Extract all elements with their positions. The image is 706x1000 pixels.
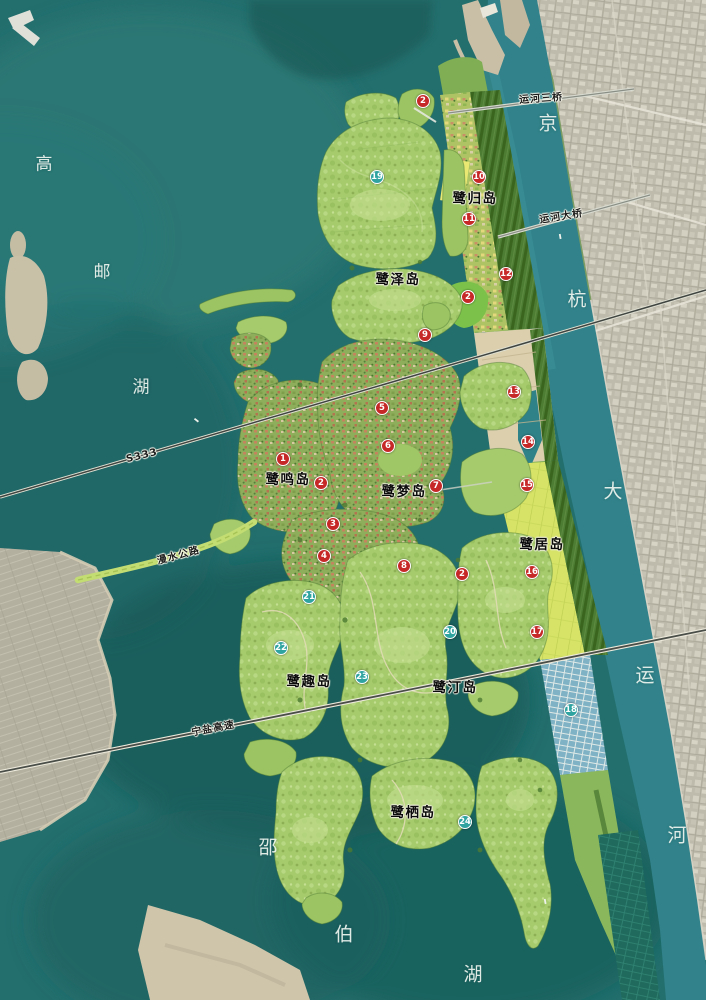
- map-marker-11[interactable]: 11: [462, 212, 476, 226]
- map-marker-4[interactable]: 4: [317, 549, 331, 563]
- water-label-char: 邵: [258, 833, 277, 860]
- map-marker-5[interactable]: 5: [375, 401, 389, 415]
- map-marker-2[interactable]: 2: [416, 94, 430, 108]
- road-label-宁盐高速: 宁盐高速: [190, 715, 236, 738]
- map-marker-9[interactable]: 9: [418, 328, 432, 342]
- map-marker-14[interactable]: 14: [521, 435, 535, 449]
- map-marker-2[interactable]: 2: [461, 290, 475, 304]
- map-marker-16[interactable]: 16: [525, 565, 539, 579]
- water-label-char: 京: [538, 109, 557, 136]
- island-label-鹭栖岛: 鹭栖岛: [391, 801, 436, 821]
- road-label-运河大桥: 运河大桥: [538, 204, 584, 226]
- water-label-char: 运: [635, 661, 654, 688]
- map-marker-10[interactable]: 10: [472, 170, 486, 184]
- map-marker-15[interactable]: 15: [520, 478, 534, 492]
- road-label-漫水公路: 漫水公路: [155, 541, 201, 567]
- island-label-鹭泽岛: 鹭泽岛: [376, 268, 421, 288]
- water-label-char: 湖: [463, 960, 482, 987]
- map-marker-1[interactable]: 1: [276, 452, 290, 466]
- island-label-鹭梦岛: 鹭梦岛: [382, 480, 427, 500]
- map-marker-2[interactable]: 2: [455, 567, 469, 581]
- water-label-char: 河: [667, 821, 686, 848]
- map-marker-24[interactable]: 24: [458, 815, 472, 829]
- satellite-master-plan-map: 高邮湖邵伯湖京杭大运河鹭归岛鹭泽岛鹭鸣岛鹭梦岛鹭居岛鹭趣岛鹭汀岛鹭栖岛运河三桥运…: [0, 0, 706, 1000]
- map-marker-22[interactable]: 22: [274, 641, 288, 655]
- island-label-鹭归岛: 鹭归岛: [453, 187, 498, 207]
- water-label-char: 邮: [94, 258, 111, 283]
- map-marker-13[interactable]: 13: [507, 385, 521, 399]
- road-label-S333: S333: [125, 447, 159, 465]
- water-label-char: 伯: [334, 920, 353, 947]
- water-label-char: 高: [36, 150, 53, 175]
- map-annotation-overlay: 高邮湖邵伯湖京杭大运河鹭归岛鹭泽岛鹭鸣岛鹭梦岛鹭居岛鹭趣岛鹭汀岛鹭栖岛运河三桥运…: [0, 0, 706, 1000]
- road-label-运河三桥: 运河三桥: [519, 88, 564, 106]
- map-marker-18[interactable]: 18: [564, 703, 578, 717]
- map-marker-21[interactable]: 21: [302, 590, 316, 604]
- island-label-鹭居岛: 鹭居岛: [520, 533, 565, 553]
- map-marker-6[interactable]: 6: [381, 439, 395, 453]
- map-marker-20[interactable]: 20: [443, 625, 457, 639]
- map-marker-23[interactable]: 23: [355, 670, 369, 684]
- island-label-鹭鸣岛: 鹭鸣岛: [266, 468, 311, 488]
- map-marker-8[interactable]: 8: [397, 559, 411, 573]
- water-label-char: 杭: [567, 285, 586, 312]
- map-marker-12[interactable]: 12: [499, 267, 513, 281]
- water-label-char: 大: [603, 477, 622, 504]
- map-marker-3[interactable]: 3: [326, 517, 340, 531]
- map-marker-2[interactable]: 2: [314, 476, 328, 490]
- water-label-char: 湖: [133, 373, 150, 398]
- map-marker-17[interactable]: 17: [530, 625, 544, 639]
- map-marker-7[interactable]: 7: [429, 479, 443, 493]
- island-label-鹭趣岛: 鹭趣岛: [287, 670, 332, 690]
- island-label-鹭汀岛: 鹭汀岛: [433, 676, 478, 696]
- map-marker-19[interactable]: 19: [370, 170, 384, 184]
